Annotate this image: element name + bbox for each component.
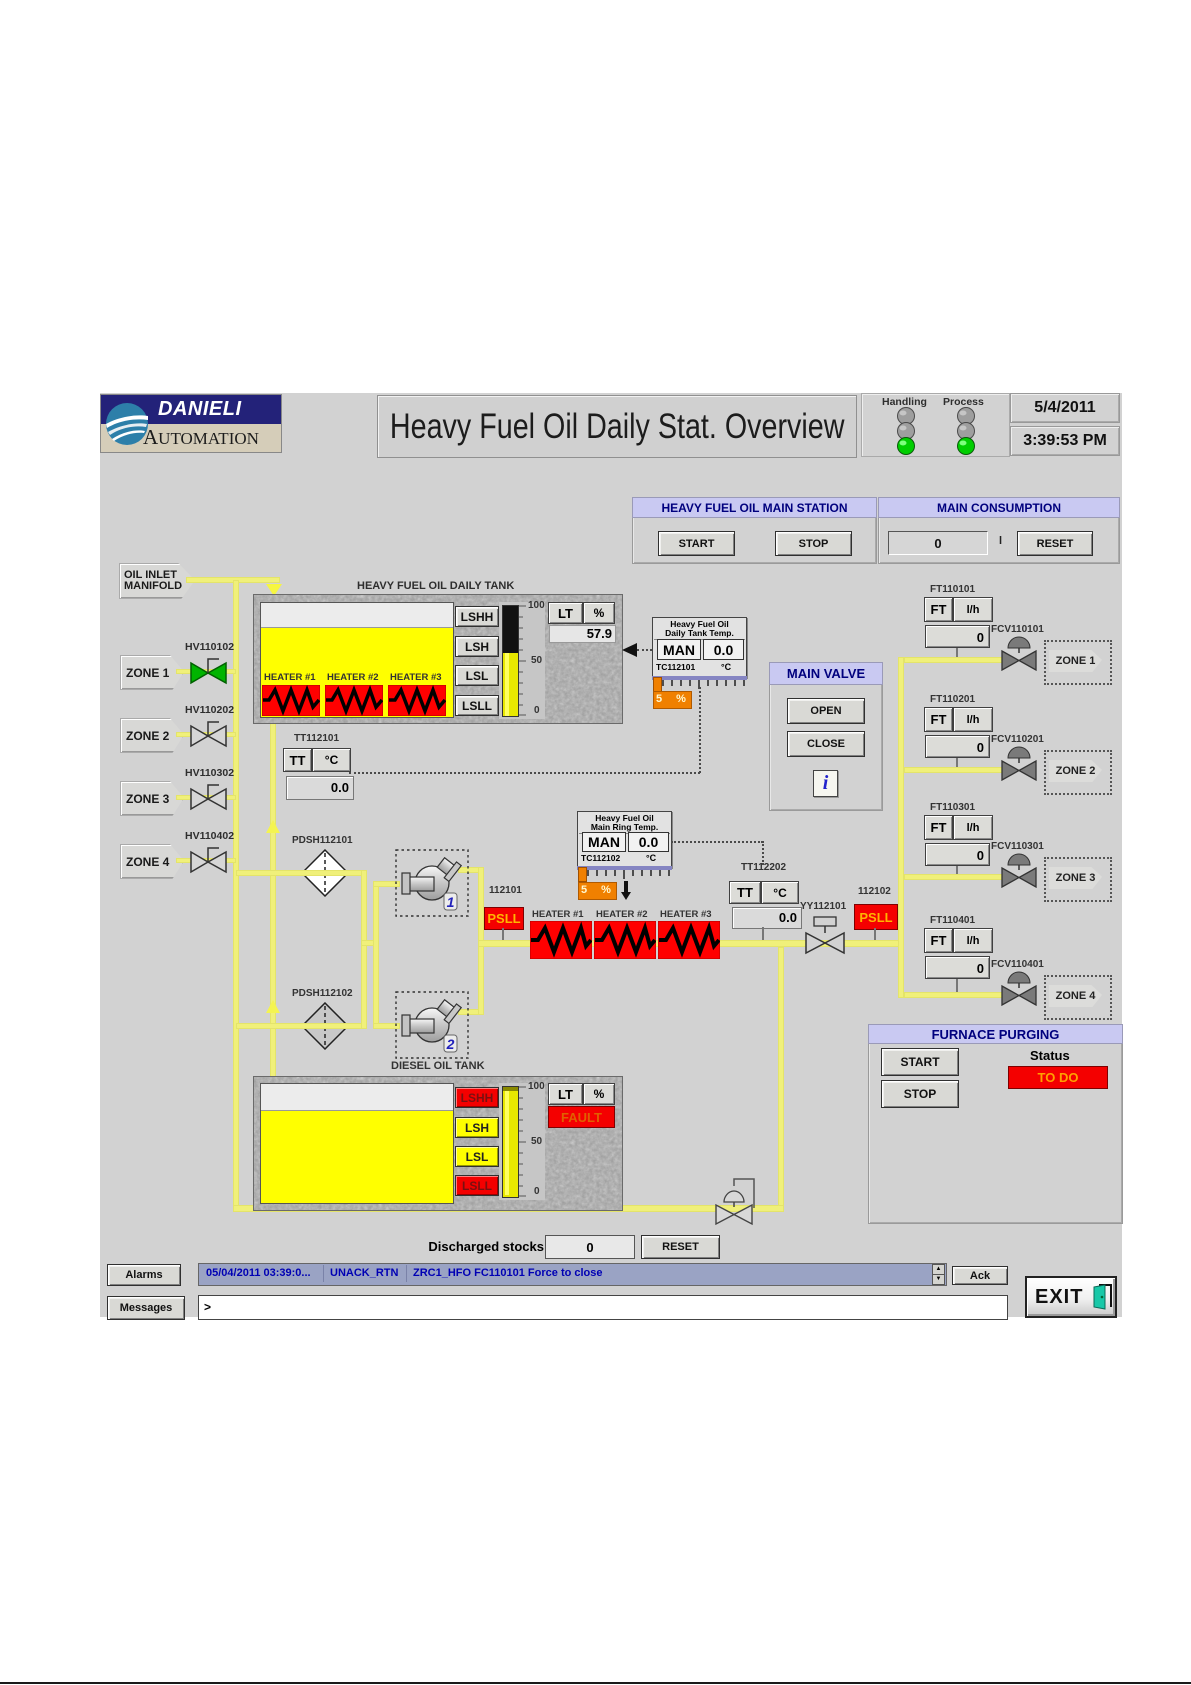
svg-text:1: 1 xyxy=(447,894,455,910)
svg-text:2: 2 xyxy=(446,1036,455,1052)
